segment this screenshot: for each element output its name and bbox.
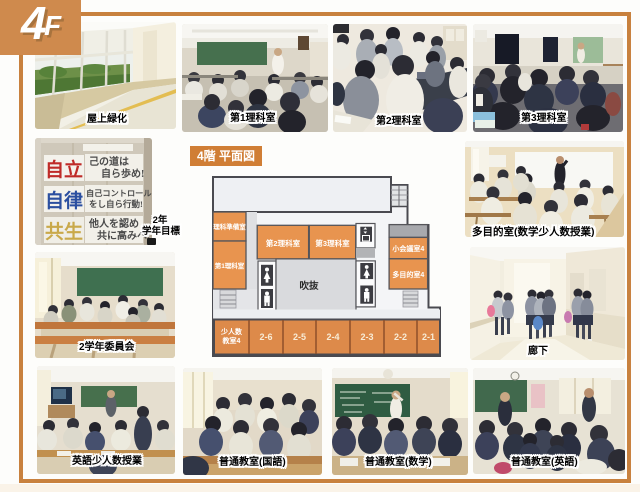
- svg-text:小会議室4: 小会議室4: [391, 244, 424, 253]
- svg-text:他人を認め: 他人を認め: [88, 217, 139, 230]
- svg-text:2-4: 2-4: [326, 332, 339, 342]
- svg-text:自立: 自立: [45, 158, 83, 181]
- svg-text:第1理科室: 第1理科室: [215, 261, 245, 270]
- svg-text:自ら歩め!: 自ら歩め!: [101, 167, 144, 180]
- svg-text:をし自ら行動!: をし自ら行動!: [89, 199, 143, 209]
- svg-text:F: F: [44, 10, 62, 41]
- svg-text:多目的室4: 多目的室4: [392, 270, 424, 279]
- svg-text:自律: 自律: [45, 189, 83, 212]
- svg-text:自己コントロール: 自己コントロール: [86, 188, 152, 198]
- svg-text:第2理科室: 第2理科室: [266, 238, 301, 248]
- svg-text:教室4: 教室4: [222, 336, 241, 345]
- svg-text:理科準備室: 理科準備室: [213, 222, 246, 231]
- svg-text:2-3: 2-3: [360, 332, 373, 342]
- svg-text:第3理科室: 第3理科室: [315, 238, 350, 248]
- svg-text:少人数: 少人数: [220, 327, 243, 336]
- svg-text:吹抜: 吹抜: [299, 280, 319, 292]
- svg-text:2-6: 2-6: [259, 332, 272, 342]
- svg-text:共生: 共生: [45, 220, 83, 243]
- svg-text:4: 4: [20, 0, 47, 49]
- svg-text:2-2: 2-2: [394, 332, 407, 342]
- svg-text:己の道は: 己の道は: [89, 155, 129, 168]
- svg-text:2-5: 2-5: [293, 332, 306, 342]
- svg-text:2-1: 2-1: [422, 332, 435, 342]
